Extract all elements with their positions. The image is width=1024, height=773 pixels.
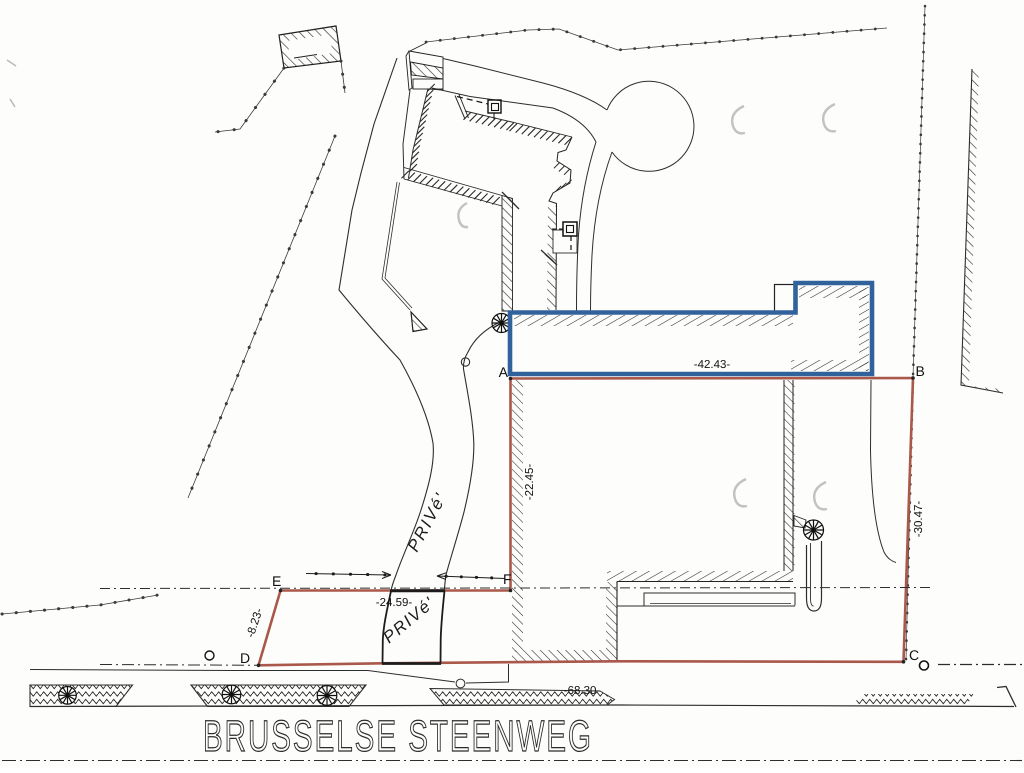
svg-text:-22.45-: -22.45-: [524, 464, 536, 501]
svg-text:F: F: [503, 571, 512, 587]
svg-text:B: B: [916, 363, 925, 379]
svg-text:-42.43-: -42.43-: [694, 359, 731, 371]
svg-text:-30.47-: -30.47-: [913, 501, 925, 538]
svg-text:-68.30-: -68.30-: [564, 685, 601, 697]
svg-text:D: D: [240, 650, 250, 666]
svg-text:-24.59-: -24.59-: [376, 597, 413, 609]
svg-text:E: E: [272, 573, 281, 589]
svg-text:BRUSSELSE STEENWEG: BRUSSELSE STEENWEG: [203, 712, 593, 761]
svg-text:C: C: [909, 647, 919, 663]
svg-text:A: A: [499, 364, 509, 380]
